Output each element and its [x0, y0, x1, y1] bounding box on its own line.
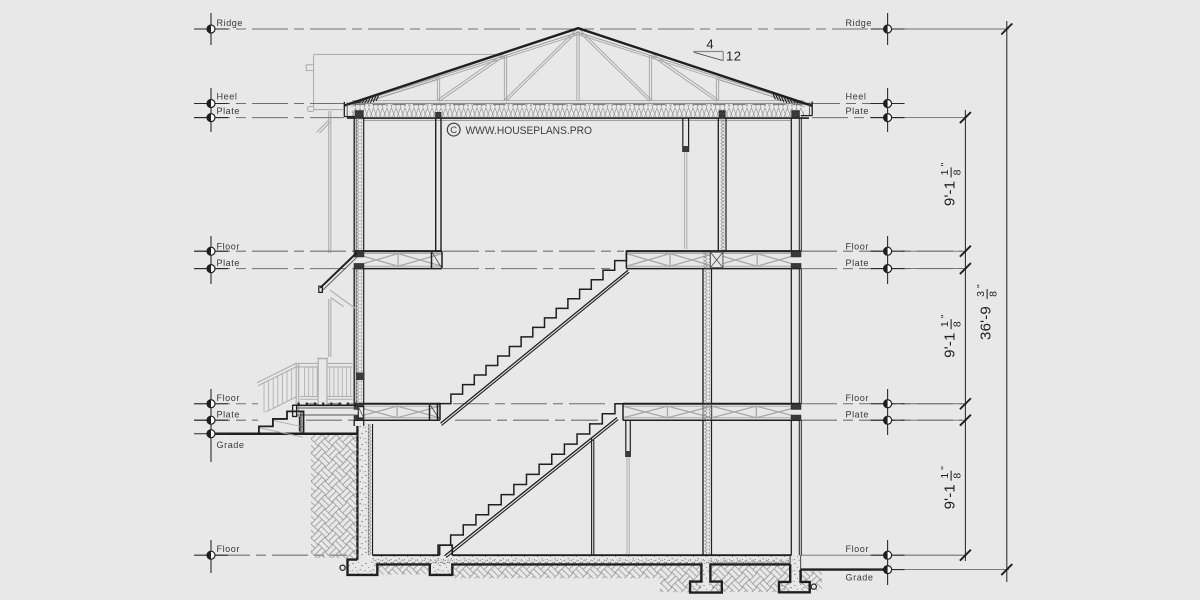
svg-text:C: C: [450, 125, 457, 136]
svg-text:9'-1: 9'-1: [942, 333, 959, 358]
svg-text:Plate: Plate: [217, 106, 240, 116]
svg-text:Plate: Plate: [217, 409, 240, 419]
svg-text:9'-1: 9'-1: [942, 181, 959, 206]
svg-text:1: 1: [939, 169, 951, 175]
svg-text:4: 4: [706, 37, 713, 52]
svg-text:Plate: Plate: [846, 106, 869, 116]
svg-text:Grade: Grade: [217, 440, 245, 450]
svg-text:8: 8: [987, 291, 999, 297]
svg-text:Plate: Plate: [217, 258, 240, 268]
svg-text:Floor: Floor: [846, 393, 869, 403]
svg-text:36'-9: 36'-9: [978, 306, 995, 340]
svg-text:Floor: Floor: [217, 241, 240, 251]
svg-text:": ": [975, 284, 987, 288]
svg-text:": ": [939, 314, 951, 318]
svg-text:8: 8: [951, 169, 963, 175]
svg-text:12: 12: [726, 49, 741, 64]
svg-text:Grade: Grade: [846, 572, 874, 582]
svg-text:WWW.HOUSEPLANS.PRO: WWW.HOUSEPLANS.PRO: [466, 125, 593, 137]
svg-text:Floor: Floor: [217, 393, 240, 403]
svg-text:Plate: Plate: [846, 409, 869, 419]
svg-text:Ridge: Ridge: [217, 18, 244, 28]
svg-text:Floor: Floor: [217, 544, 240, 554]
svg-text:Floor: Floor: [846, 241, 869, 251]
svg-text:1: 1: [939, 321, 951, 327]
svg-text:Ridge: Ridge: [846, 18, 873, 28]
svg-text:3: 3: [975, 291, 987, 297]
svg-text:Floor: Floor: [846, 544, 869, 554]
svg-text:Heel: Heel: [846, 92, 867, 102]
svg-text:8: 8: [951, 321, 963, 327]
svg-text:1: 1: [939, 473, 951, 479]
svg-text:Heel: Heel: [217, 92, 238, 102]
svg-text:": ": [939, 162, 951, 166]
svg-text:9'-1: 9'-1: [942, 484, 959, 509]
svg-text:": ": [939, 466, 951, 470]
svg-text:Plate: Plate: [846, 258, 869, 268]
svg-text:8: 8: [951, 473, 963, 479]
